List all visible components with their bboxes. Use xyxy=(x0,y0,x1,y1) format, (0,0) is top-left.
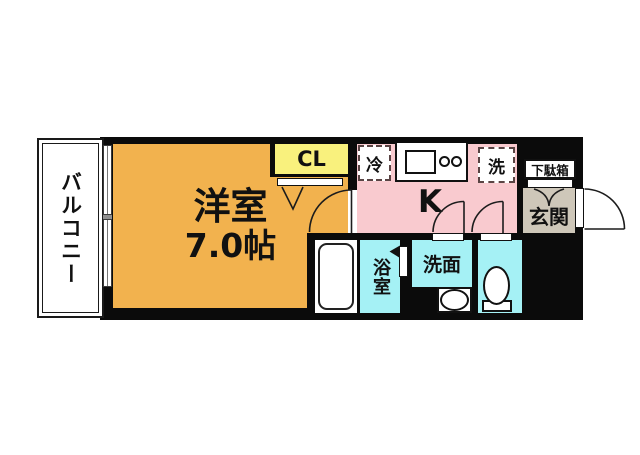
refrigerator-label: 冷 xyxy=(366,151,383,176)
washroom-label: 洗面 xyxy=(423,250,461,277)
entrance-label: 玄関 xyxy=(529,201,569,230)
balcony-window-lower xyxy=(103,219,112,287)
burner-icon xyxy=(439,156,450,167)
shoe-cabinet: 下駄箱 xyxy=(524,159,576,179)
shoe-cabinet-top xyxy=(527,179,573,188)
living-room-label: 洋室 xyxy=(194,188,268,227)
closet-door xyxy=(277,178,343,186)
washer-space: 洗 xyxy=(478,147,515,183)
burner-icon xyxy=(451,156,462,167)
entrance-door xyxy=(575,188,584,228)
closet-area: CL xyxy=(270,144,348,177)
washer-label: 洗 xyxy=(488,153,505,178)
entrance-area: 玄関 xyxy=(523,188,575,233)
entrance-door-arc xyxy=(585,189,625,229)
closet-label: CL xyxy=(297,147,326,171)
bathroom-door xyxy=(399,246,408,277)
washbasin xyxy=(437,287,472,313)
toilet-bowl-icon xyxy=(483,266,510,305)
kitchen-label: K xyxy=(412,185,448,219)
bathtub-space xyxy=(315,240,357,313)
bathtub-icon xyxy=(318,243,354,310)
washroom-area: 洗面 xyxy=(412,240,472,287)
balcony-window-upper xyxy=(103,145,112,215)
washroom-door-opening xyxy=(432,233,464,241)
living-room-size: 7.0帖 xyxy=(185,229,276,264)
balcony-inner-border: バルコニー xyxy=(42,143,99,313)
washbasin-icon xyxy=(440,289,469,311)
bathroom-label: 浴室 xyxy=(367,258,393,296)
floorplan-canvas: バルコニー 洋室 7.0帖 CL K 冷 洗 下駄箱 玄関 浴室 洗面 xyxy=(0,0,640,455)
balcony-area: バルコニー xyxy=(37,138,104,318)
refrigerator-space: 冷 xyxy=(358,145,391,181)
toilet-door-opening xyxy=(480,233,512,241)
shoe-cabinet-label: 下駄箱 xyxy=(531,160,569,179)
sink-icon xyxy=(405,150,436,174)
living-room-door-opening xyxy=(348,190,357,233)
balcony-label: バルコニー xyxy=(56,171,86,286)
bathroom-area: 浴室 xyxy=(360,240,400,313)
